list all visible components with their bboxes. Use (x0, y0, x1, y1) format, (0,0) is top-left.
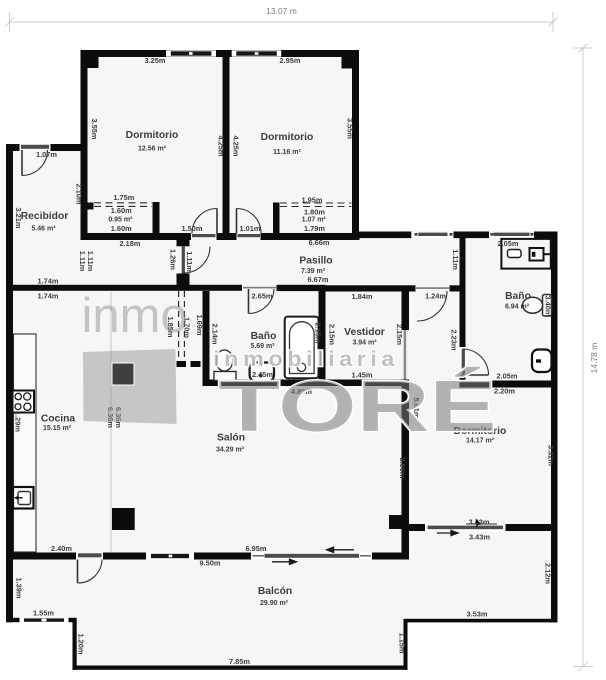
svg-text:1.29m: 1.29m (14, 411, 23, 432)
svg-text:Balcón: Balcón (258, 586, 292, 597)
svg-text:TORÉ: TORÉ (218, 366, 496, 447)
svg-text:2.40m: 2.40m (51, 544, 72, 553)
svg-text:1.50m: 1.50m (182, 224, 203, 233)
svg-text:6.95m: 6.95m (246, 544, 267, 553)
svg-text:3.94 m²: 3.94 m² (352, 340, 377, 347)
svg-text:5.46 m²: 5.46 m² (31, 226, 56, 233)
svg-text:13.07 m: 13.07 m (266, 6, 297, 16)
svg-text:29.90 m²: 29.90 m² (260, 600, 289, 607)
svg-text:3.55m: 3.55m (346, 118, 355, 139)
svg-text:6.66m: 6.66m (309, 238, 330, 247)
svg-text:9.50m: 9.50m (200, 559, 221, 568)
svg-text:2.05m: 2.05m (497, 372, 518, 381)
svg-text:1.26m: 1.26m (169, 249, 178, 270)
svg-text:11.16 m²: 11.16 m² (273, 149, 301, 156)
svg-text:7.39 m²: 7.39 m² (301, 268, 326, 275)
svg-text:12.56 m²: 12.56 m² (138, 146, 167, 153)
svg-text:2.05m: 2.05m (498, 239, 519, 248)
svg-text:Cocina: Cocina (41, 414, 76, 425)
svg-text:4.25m: 4.25m (232, 136, 241, 157)
svg-text:1.11m: 1.11m (451, 249, 460, 270)
svg-text:2.20m: 2.20m (494, 387, 515, 396)
svg-text:2.12m: 2.12m (544, 563, 553, 584)
svg-text:1.69m: 1.69m (195, 315, 204, 336)
svg-text:Dormitorio: Dormitorio (126, 130, 179, 141)
svg-text:2.14m: 2.14m (211, 324, 220, 345)
svg-text:1.55m: 1.55m (33, 608, 54, 617)
svg-text:1.60m: 1.60m (111, 224, 132, 233)
svg-text:1.80m: 1.80m (304, 208, 325, 217)
svg-text:2.15m: 2.15m (328, 324, 337, 345)
svg-text:1.07m: 1.07m (36, 150, 57, 159)
svg-text:1.39m: 1.39m (14, 578, 23, 599)
svg-text:3.55m: 3.55m (90, 119, 99, 140)
svg-text:2.18m: 2.18m (120, 239, 141, 248)
svg-text:3.43m: 3.43m (469, 533, 490, 542)
svg-text:3.53m: 3.53m (467, 610, 488, 619)
svg-text:14.78 m: 14.78 m (589, 343, 599, 374)
svg-text:3.25m: 3.25m (145, 56, 166, 65)
svg-text:3.32m: 3.32m (547, 445, 556, 466)
svg-text:1.15m: 1.15m (398, 633, 407, 654)
svg-text:Recibidor: Recibidor (21, 211, 69, 222)
svg-text:1.60m: 1.60m (111, 206, 132, 215)
svg-text:6.94 m²: 6.94 m² (505, 304, 530, 311)
svg-text:2.10m: 2.10m (75, 184, 84, 205)
svg-text:Baño: Baño (505, 291, 531, 302)
svg-text:Pasillo: Pasillo (299, 256, 332, 267)
svg-text:4.25m: 4.25m (217, 136, 226, 157)
svg-text:1.01m: 1.01m (240, 224, 261, 233)
svg-text:1.75m: 1.75m (113, 193, 134, 202)
svg-text:3.99m: 3.99m (398, 458, 407, 479)
svg-text:1.74m: 1.74m (38, 277, 59, 286)
svg-text:15.15 m²: 15.15 m² (43, 425, 72, 432)
svg-text:2.15m: 2.15m (395, 324, 404, 345)
svg-text:1.20m: 1.20m (77, 634, 86, 655)
svg-text:1.95m: 1.95m (302, 196, 323, 205)
svg-text:7.85m: 7.85m (229, 657, 250, 666)
svg-text:0.95 m²: 0.95 m² (108, 217, 133, 224)
svg-text:1.07 m²: 1.07 m² (302, 217, 327, 224)
svg-text:3.40m: 3.40m (544, 296, 553, 317)
svg-text:1.11m: 1.11m (78, 251, 87, 272)
svg-text:1.11m: 1.11m (86, 251, 95, 272)
svg-text:2.95m: 2.95m (280, 56, 301, 65)
svg-text:34.29 m²: 34.29 m² (216, 447, 245, 454)
svg-text:1.11m: 1.11m (185, 251, 194, 272)
svg-text:1.84m: 1.84m (352, 292, 373, 301)
svg-text:3.21m: 3.21m (14, 208, 23, 229)
svg-text:Dormitorio: Dormitorio (261, 132, 314, 143)
svg-text:Baño: Baño (251, 331, 277, 342)
svg-text:inmo: inmo (82, 289, 188, 343)
svg-text:2.23m: 2.23m (450, 330, 459, 351)
svg-text:2.15m: 2.15m (314, 323, 323, 344)
svg-text:6.67m: 6.67m (308, 275, 329, 284)
svg-text:2.65m: 2.65m (252, 292, 273, 301)
svg-text:1.74m: 1.74m (38, 292, 59, 301)
svg-text:1.79m: 1.79m (304, 224, 325, 233)
svg-text:1.24m: 1.24m (425, 292, 446, 301)
svg-text:Vestidor: Vestidor (344, 327, 385, 338)
